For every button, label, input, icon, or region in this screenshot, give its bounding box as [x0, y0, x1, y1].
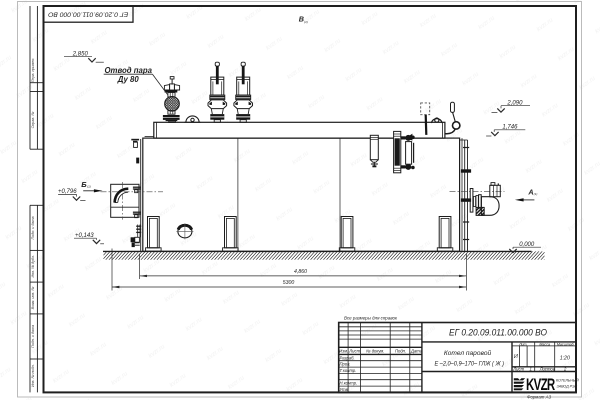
svg-text:ЗАВОД РЭП: ЗАВОД РЭП [557, 385, 578, 389]
svg-text:Котел паровой: Котел паровой [444, 349, 492, 357]
svg-text:2,850: 2,850 [72, 52, 89, 58]
svg-text:Н.контр.: Н.контр. [340, 381, 358, 386]
svg-text:Масштаб: Масштаб [557, 342, 575, 346]
svg-text:Все размеры для справок: Все размеры для справок [344, 316, 398, 322]
svg-text:Инв. № подл.: Инв. № подл. [31, 364, 35, 387]
svg-text:Справ. №: Справ. № [31, 112, 35, 129]
svg-text:И: И [514, 354, 518, 360]
svg-text:ЕГ 0.20.09.011.00.000 ВО: ЕГ 0.20.09.011.00.000 ВО [48, 11, 128, 18]
svg-text:В: В [299, 14, 304, 23]
svg-text:Подп. и дата: Подп. и дата [31, 216, 35, 239]
svg-text:КОТЕЛЬНЫЙ: КОТЕЛЬНЫЙ [556, 379, 579, 383]
svg-text:ЕГ 0.20.09.011.00.000 ВО: ЕГ 0.20.09.011.00.000 ВО [449, 328, 547, 338]
svg-text:Изм.: Изм. [339, 349, 348, 354]
svg-text:Лист: Лист [348, 349, 360, 354]
svg-text:KVZR: KVZR [526, 376, 555, 394]
svg-text:№ докум.: № докум. [366, 349, 384, 354]
svg-text:1:20: 1:20 [560, 355, 570, 361]
svg-text:Е –2,0–0,9–170– ГЛЖ ( Ж ): Е –2,0–0,9–170– ГЛЖ ( Ж ) [435, 360, 505, 367]
svg-text:Взам. инв. №: Взам. инв. № [31, 287, 35, 310]
svg-text:(1): (1) [87, 184, 91, 188]
svg-text:Масса: Масса [539, 342, 550, 346]
svg-text:1: 1 [530, 367, 532, 372]
svg-text:+0,796: +0,796 [58, 189, 77, 195]
svg-text:Т.контр.: Т.контр. [340, 368, 357, 373]
svg-text:Утв.: Утв. [340, 387, 350, 392]
svg-text:0,000: 0,000 [519, 242, 535, 248]
svg-text:Пров.: Пров. [340, 362, 351, 367]
svg-text:Перв. примен.: Перв. примен. [31, 58, 35, 83]
svg-text:2,090: 2,090 [506, 101, 523, 107]
svg-text:А: А [527, 187, 533, 196]
svg-text:Формат А3: Формат А3 [527, 395, 552, 400]
svg-text:Лист: Лист [512, 367, 524, 372]
svg-text:(1): (1) [534, 192, 538, 196]
svg-text:+0,143: +0,143 [75, 233, 94, 239]
svg-text:Лит.: Лит. [518, 342, 527, 346]
svg-text:4,860: 4,860 [294, 269, 307, 275]
svg-text:Отвод пара: Отвод пара [104, 66, 152, 75]
svg-text:1,746: 1,746 [502, 125, 518, 131]
svg-text:Разраб.: Разраб. [340, 355, 355, 360]
svg-text:Инв. № дубл.: Инв. № дубл. [31, 255, 35, 278]
svg-text:Ду 80: Ду 80 [117, 75, 140, 84]
svg-text:Дата: Дата [410, 349, 423, 354]
svg-text:Подп. и дата: Подп. и дата [31, 325, 35, 348]
svg-text:(1): (1) [304, 20, 308, 24]
svg-text:Листов: Листов [539, 367, 556, 372]
svg-text:5300: 5300 [283, 280, 295, 286]
svg-text:Подп.: Подп. [395, 349, 406, 354]
